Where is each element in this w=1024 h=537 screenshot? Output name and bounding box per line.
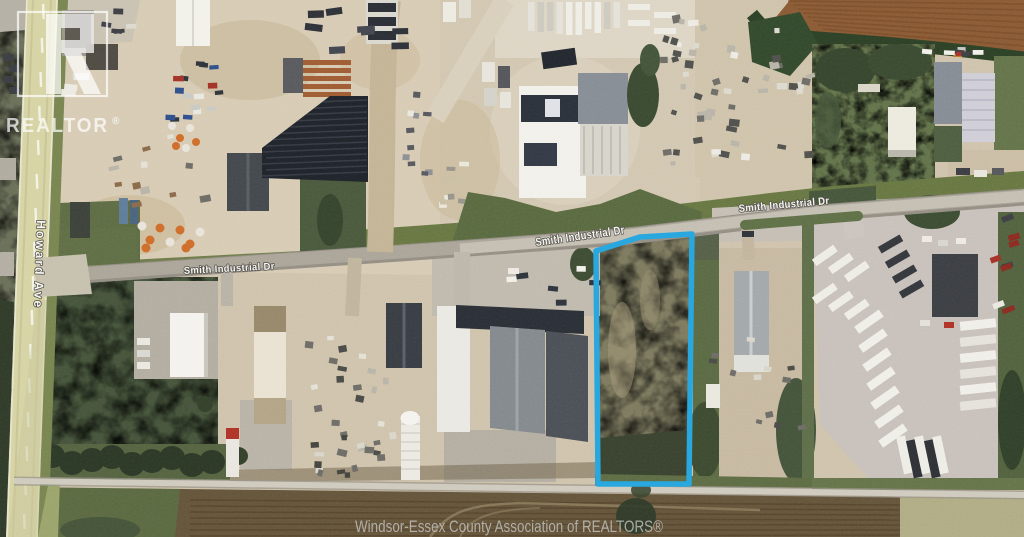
svg-text:®: ® (112, 116, 120, 127)
svg-text:Windsor-Essex County Associati: Windsor-Essex County Association of REAL… (355, 518, 663, 536)
svg-text:REALTOR: REALTOR (6, 115, 109, 137)
